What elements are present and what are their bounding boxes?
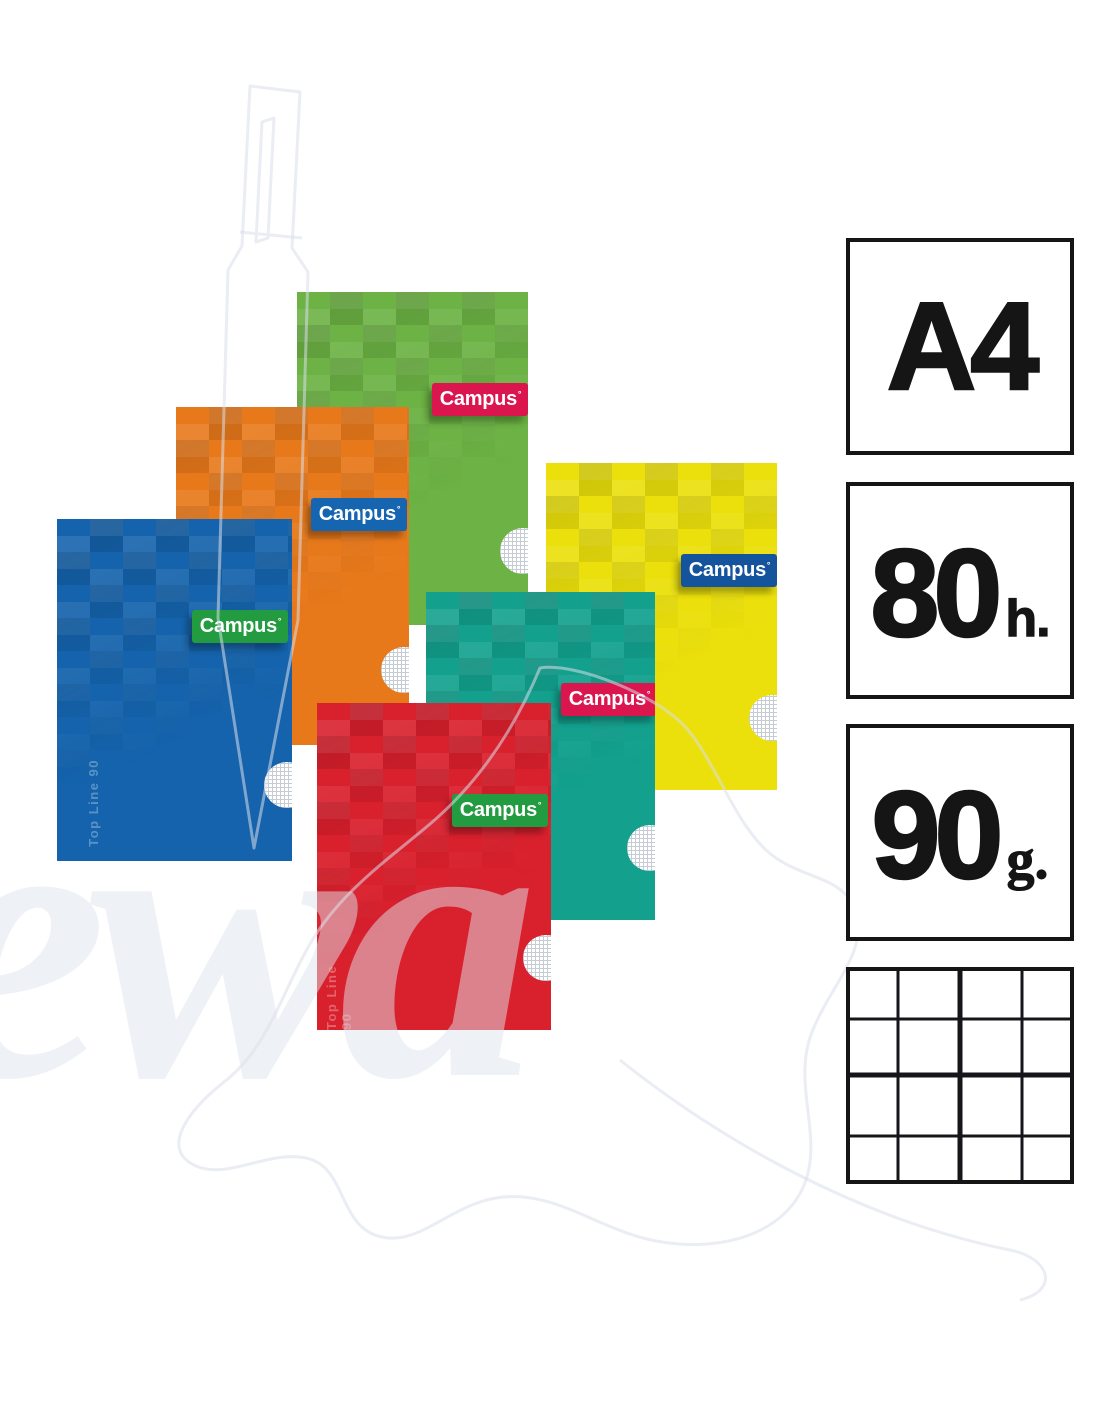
campus-label: Campus° <box>311 498 407 531</box>
paper-weight-unit: g. <box>1006 828 1048 892</box>
campus-label-text: Campus <box>689 559 766 582</box>
campus-label-text: Campus <box>460 799 537 822</box>
notebook-red: Top Line 90 Campus° <box>317 703 551 1030</box>
campus-label: Campus° <box>192 610 288 643</box>
spec-box-paper-weight: 90g. <box>846 724 1074 941</box>
campus-label: Campus° <box>432 383 528 416</box>
grid-paper-icon <box>850 971 1070 1180</box>
sheet-count-value: 80 <box>870 532 996 656</box>
spec-box-paper-size: A4 <box>846 238 1074 455</box>
campus-label-text: Campus <box>440 388 517 411</box>
product-image: Campus° Campus° Top Line 90 Campus° Camp… <box>0 0 1100 1422</box>
campus-label-text: Campus <box>569 688 646 711</box>
campus-label: Campus° <box>561 683 655 716</box>
pen-clip-watermark-outline <box>240 118 302 242</box>
sheet-count-unit: h. <box>1005 589 1049 649</box>
spec-box-ruling <box>846 967 1074 1184</box>
campus-label: Campus° <box>681 554 777 587</box>
campus-label: Campus° <box>452 794 548 827</box>
paper-weight-value: 90 <box>872 774 998 898</box>
notebook-blue: Top Line 90 Campus° <box>57 519 292 861</box>
cover-side-text: Top Line 90 <box>86 759 101 847</box>
paper-size-value: A4 <box>887 285 1034 409</box>
campus-label-text: Campus <box>200 615 277 638</box>
cover-side-text: Top Line 90 <box>324 943 354 1030</box>
campus-label-text: Campus <box>319 503 396 526</box>
spec-box-sheet-count: 80h. <box>846 482 1074 699</box>
